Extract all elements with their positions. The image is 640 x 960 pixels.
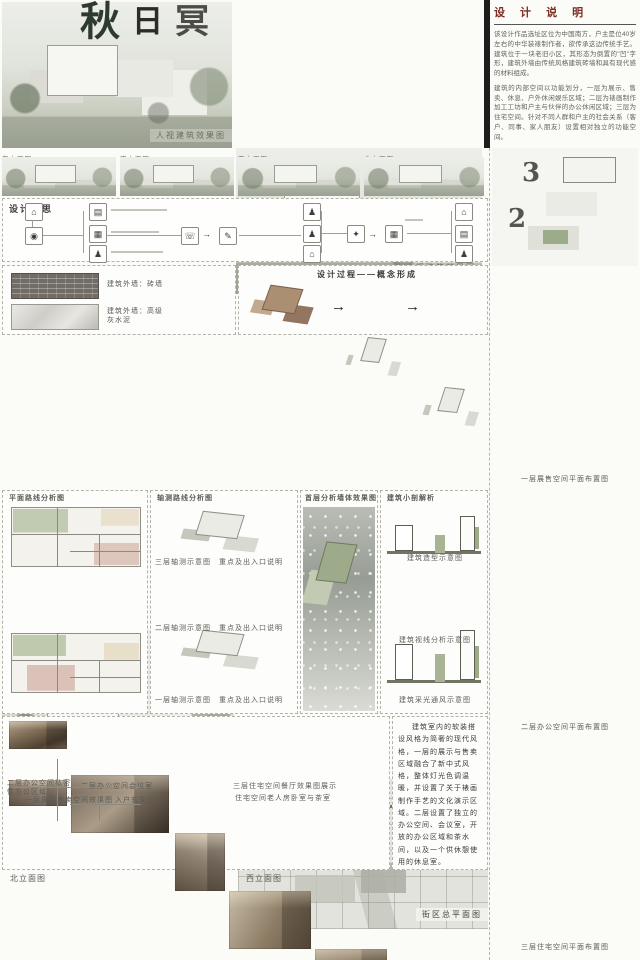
route-plan-3f <box>11 507 141 567</box>
flow-node: ▤ <box>455 225 473 243</box>
description-paragraph: 该设计作品选址区位为中国南方，户主是位40岁左右的中华装裱制作者，欲传承这边传统… <box>494 30 636 79</box>
person-icon: ♟ <box>308 229 316 240</box>
flow-label-bar <box>111 251 163 253</box>
elevation-image <box>2 157 116 196</box>
arrow-icon: → <box>331 298 346 315</box>
flow-node: ⌂ <box>25 203 43 221</box>
home-icon: ⌂ <box>31 207 36 217</box>
plan-caption: 三层住宅空间平面布置图 <box>492 942 638 952</box>
person-icon: ♟ <box>308 207 316 218</box>
flow-node: ▦ <box>89 225 107 243</box>
material-label: 建筑外墙：砖墙 <box>107 281 163 290</box>
axon-caption: 二层轴测示意图 重点及出入口说明 <box>155 625 283 634</box>
elevation-panel-south: 南立面图 <box>120 148 234 196</box>
panel-header: 平面路线分析图 <box>9 495 65 504</box>
flow-line <box>83 211 84 253</box>
panel-header: 轴测路线分析图 <box>157 495 213 504</box>
grid-icon: ▦ <box>390 229 399 240</box>
concrete-swatch <box>11 304 99 330</box>
title-char: 秋 <box>80 2 120 42</box>
description-header: 设 计 说 明 <box>494 4 636 25</box>
north-elevation-label: 北立面图 <box>10 874 46 884</box>
home-icon: ⌂ <box>309 249 314 259</box>
section-caption: 建筑采光通风示意图 <box>381 697 489 706</box>
arrow-icon: → <box>405 298 420 315</box>
presentation-board: 人视建筑效果图 秋 日 冥 人视建筑效果图 设 计 说 明 该设计作品选址区位为… <box>0 0 640 960</box>
title-char: 日 <box>132 7 163 38</box>
photo-caption: 三层住宅空间餐厅效果图展示 <box>233 783 337 792</box>
title-char: 冥 <box>175 5 209 39</box>
process-panel: 设计过程——概念形成 → → <box>238 265 488 335</box>
panel-header: 首层分析墙体效果图 <box>305 495 377 504</box>
section-caption: 建筑视线分析示意图 <box>381 637 489 646</box>
process-axon-final <box>425 380 481 430</box>
elevation-image <box>120 157 234 196</box>
flow-node: ♟ <box>455 245 473 263</box>
section-analysis-panel: 建筑小剖解析 建筑造型示意图 建筑视线分析示意图 建筑采光通风示意图 <box>380 490 488 714</box>
person-icon: ♟ <box>460 249 468 260</box>
divider-bar <box>484 0 490 148</box>
exploded-axon-drawing <box>526 154 632 260</box>
flow-label-bar <box>405 219 423 221</box>
interior-note-paragraph: 建筑室内的软装搭设风格为简奢的现代风格，一层的展示与售卖区域融合了新中式风格，整… <box>398 721 482 868</box>
flow-node: ♟ <box>303 203 321 221</box>
phone-icon: ☏ <box>184 231 195 242</box>
axon-3f <box>163 505 287 555</box>
pin-icon: ◉ <box>30 231 38 242</box>
plan-icon: ▤ <box>94 207 103 218</box>
elevation-panel-east: 东立面图 <box>2 148 116 196</box>
flow-node: ♟ <box>303 225 321 243</box>
flow-node: ▤ <box>89 203 107 221</box>
flow-line <box>451 211 452 253</box>
material-label: 建筑外墙：高级灰水泥 <box>107 308 167 326</box>
rain-perspective-image <box>303 507 375 711</box>
elevation-panel-west: 西立面图 <box>238 148 360 196</box>
flow-node: ◉ <box>25 227 43 245</box>
flow-node: ▦ <box>385 225 403 243</box>
description-paragraph: 建筑的内部空间以功能划分，一层为展示、售卖、休息、户外休闲娱乐区域；二层为裱画制… <box>494 84 636 143</box>
section-sightline-diagram <box>387 618 481 683</box>
flow-node: ☏ <box>181 227 199 245</box>
arrow-icon: → <box>202 229 211 239</box>
flow-node: ⌂ <box>455 203 473 221</box>
siteplan-caption: 街区总平面图 <box>416 908 488 921</box>
interior-photo-office <box>9 721 67 749</box>
brick-swatch <box>11 273 99 299</box>
plan-route-panel: 平面路线分析图 <box>2 490 148 714</box>
materials-panel: 建筑外墙：砖墙 建筑外墙：高级灰水泥 <box>2 265 236 335</box>
flow-line <box>321 233 347 234</box>
interior-note-paragraph: 老人房设置了茶室，给户主父母提高生活幸福感。 <box>398 868 482 870</box>
axon-route-panel: 轴测路线分析图 三层轴测示意图 重点及出入口说明 二层轴测示意图 重点及出入口说… <box>150 490 298 714</box>
process-header: 设计过程——概念形成 <box>317 269 417 280</box>
panel-header: 建筑小剖解析 <box>387 495 435 504</box>
exploded-axon-panel: 3 2 <box>492 148 638 266</box>
column-divider <box>489 148 490 960</box>
design-description-panel: 设 计 说 明 该设计作品选址区位为中国南方，户主是位40岁左右的中华装裱制作者… <box>494 4 636 144</box>
interior-note-panel: 建筑室内的软装搭设风格为简奢的现代风格，一层的展示与售卖区域融合了新中式风格，整… <box>392 716 488 870</box>
home-icon: ⌂ <box>461 207 466 217</box>
interior-photo-bedroom <box>315 949 387 960</box>
plan-caption: 二层办公空间平面布置图 <box>492 722 638 732</box>
flow-line <box>239 235 301 236</box>
flow-node: ✦ <box>347 225 365 243</box>
section-form-diagram <box>387 507 481 554</box>
west-elevation-label: 西立面图 <box>246 874 282 884</box>
flow-line <box>321 211 322 253</box>
flow-node: ♟ <box>89 245 107 263</box>
interior-photo-living <box>229 891 311 949</box>
plan-icon: ▤ <box>460 229 469 240</box>
interior-photo-dining <box>175 833 225 891</box>
person-icon: ♟ <box>94 249 102 260</box>
flow-line <box>107 235 181 236</box>
elevation-image <box>238 157 360 196</box>
flow-node: ⌂ <box>303 245 321 263</box>
flow-node: ✎ <box>219 227 237 245</box>
axon-caption: 一层轴测示意图 重点及出入口说明 <box>155 697 283 706</box>
axon-caption: 三层轴测示意图 重点及出入口说明 <box>155 559 283 568</box>
star-icon: ✦ <box>352 229 360 240</box>
section-caption: 建筑造型示意图 <box>381 555 489 564</box>
photo-caption: 住宅空间老人房卧室与茶室 <box>235 795 331 804</box>
flow-label-bar <box>111 209 167 211</box>
concept-flow-panel: 设计构思 ⌂ ◉ ▤ ▦ ♟ ☏ → ✎ ♟ ♟ ⌂ ✦ → ▦ ⌂ ▤ ♟ <box>2 198 488 262</box>
route-plan-1f <box>11 759 141 821</box>
process-axon-massing <box>247 280 325 330</box>
route-plan-2f <box>11 633 141 693</box>
pencil-icon: ✎ <box>224 231 232 242</box>
flow-line <box>407 233 451 234</box>
floor-number: 2 <box>508 204 526 234</box>
arrow-icon: → <box>368 229 377 239</box>
render-caption: 人视建筑效果图 <box>150 129 232 142</box>
wall-effect-panel: 首层分析墙体效果图 <box>300 490 378 714</box>
elevation-panel-north: 北立面图 <box>364 148 484 196</box>
flow-label-bar <box>111 231 159 233</box>
grid-icon: ▦ <box>94 229 103 240</box>
plan-caption: 一层展售空间平面布置图 <box>492 474 638 484</box>
process-axon-split <box>349 330 401 380</box>
flow-line <box>32 220 33 227</box>
flow-line <box>43 235 83 236</box>
elevation-image <box>364 157 484 196</box>
poster-title: 秋 日 冥 <box>80 2 209 42</box>
